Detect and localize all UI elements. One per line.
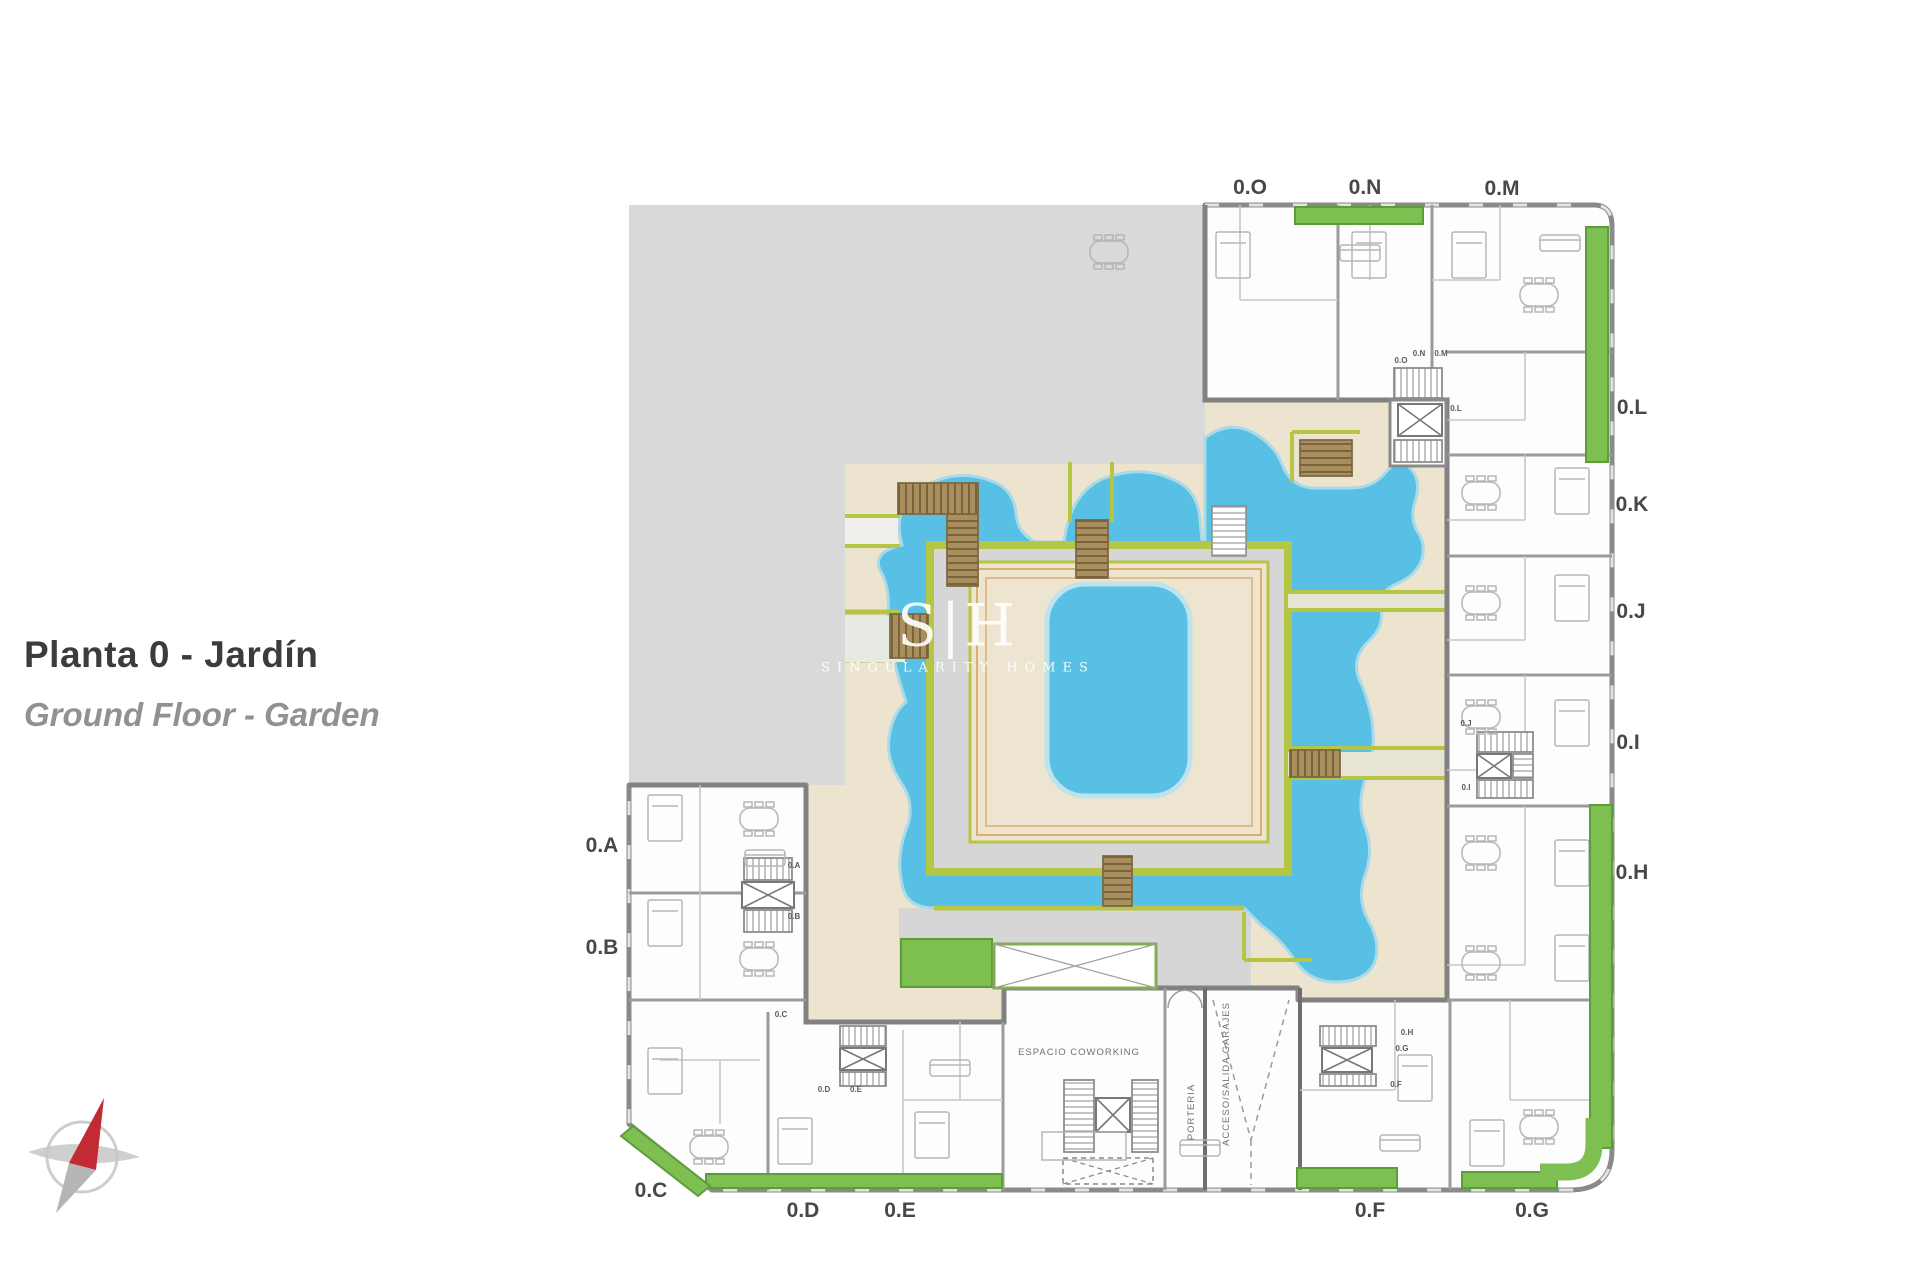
unit-tag-0-m: 0.M (1434, 349, 1448, 358)
unit-tag-0-f: 0.F (1390, 1080, 1402, 1089)
unit-tag-0-d: 0.D (818, 1085, 831, 1094)
unit-label-0-b: 0.B (586, 936, 619, 959)
north-compass-icon (28, 1098, 140, 1213)
unit-label-0-f: 0.F (1355, 1199, 1386, 1222)
unit-label-0-h: 0.H (1616, 861, 1649, 884)
unit-label-0-k: 0.K (1616, 493, 1649, 516)
unit-tag-0-o: 0.O (1395, 356, 1408, 365)
unit-tag-0-e: 0.E (850, 1085, 863, 1094)
unit-label-0-c: 0.C (635, 1179, 668, 1202)
unit-label-0-o: 0.O (1233, 176, 1267, 199)
central-pool (1047, 584, 1190, 796)
unit-label-0-a: 0.A (586, 834, 619, 857)
unit-tag-0-b: 0.B (788, 912, 801, 921)
plan-title-spanish: Planta 0 - Jardín (24, 634, 380, 676)
entrance-skylight (994, 944, 1156, 988)
unit-tag-0-l: 0.L (1450, 404, 1462, 413)
unit-label-0-g: 0.G (1515, 1199, 1549, 1222)
unit-tag-0-i: 0.I (1462, 783, 1471, 792)
unit-tag-0-c: 0.C (775, 1010, 788, 1019)
area-label-acceso-salida-garajes: ACCESO/SALIDA GARAJES (1221, 1002, 1232, 1146)
unit-tag-0-a: 0.A (788, 861, 801, 870)
unit-tag-0-n: 0.N (1413, 349, 1426, 358)
unit-label-0-e: 0.E (884, 1199, 916, 1222)
unit-label-0-j: 0.J (1616, 600, 1645, 623)
garden-courtyard (806, 400, 1450, 1022)
unit-tag-0-j: 0.J (1460, 719, 1471, 728)
unit-label-0-d: 0.D (787, 1199, 820, 1222)
plan-title-english: Ground Floor - Garden (24, 696, 380, 734)
unit-label-0-n: 0.N (1349, 176, 1382, 199)
area-label-porteria: PORTERIA (1186, 1084, 1197, 1140)
title-block: Planta 0 - Jardín Ground Floor - Garden (24, 634, 380, 734)
floor-plan-page: 0.O0.N0.M0.L0.K0.J0.I0.H0.A0.B0.C0.D0.E0… (0, 0, 1920, 1280)
area-label-espacio-coworking: ESPACIO COWORKING (1018, 1047, 1140, 1058)
unit-label-0-l: 0.L (1617, 396, 1648, 419)
unit-tag-0-g: 0.G (1396, 1044, 1409, 1053)
unit-label-0-m: 0.M (1484, 177, 1519, 200)
unit-tag-0-h: 0.H (1401, 1028, 1414, 1037)
unit-label-0-i: 0.I (1616, 731, 1639, 754)
